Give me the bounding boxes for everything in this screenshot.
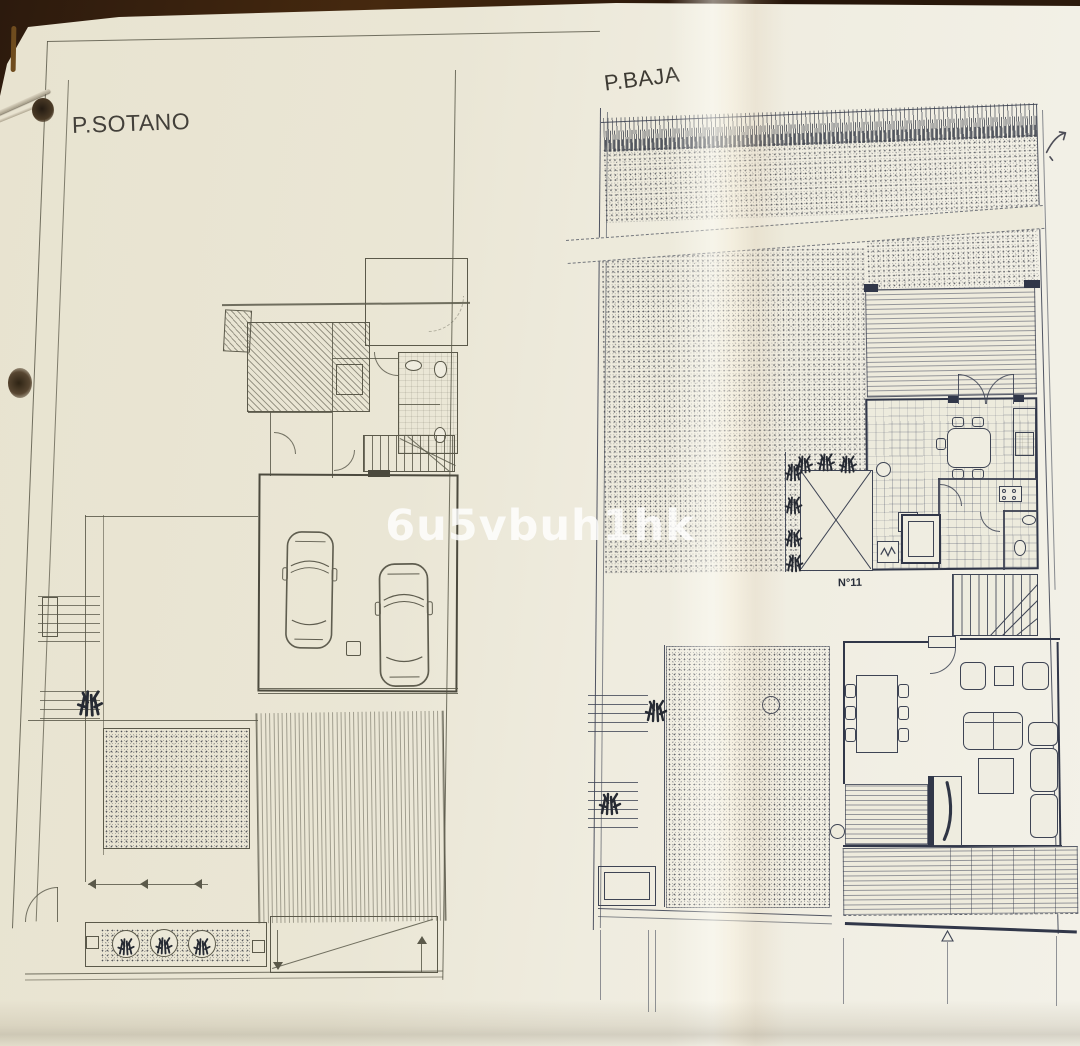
entry-steps: [604, 872, 650, 900]
terrace-line: [85, 516, 258, 517]
arrow-icon: [421, 942, 422, 972]
column: [86, 936, 99, 949]
extension-line: [843, 938, 844, 1004]
door-leaf: [958, 374, 959, 404]
shrub-icon: [192, 933, 212, 956]
toilet-icon: [434, 361, 447, 378]
chaise-sofa-icon: [1030, 748, 1058, 792]
chaise-sofa-icon: [1030, 794, 1058, 838]
shrub-icon: [154, 932, 174, 955]
elevator-car: [908, 521, 934, 557]
extension-line: [648, 930, 649, 1012]
wall-line: [248, 412, 332, 413]
shrub-icon: [836, 450, 860, 474]
deck-plank-joints: [950, 848, 1076, 914]
shrub-icon: [785, 548, 804, 574]
sink-icon: [1022, 515, 1036, 525]
stairs-icon: [363, 435, 455, 472]
staple-shadow: [32, 98, 54, 122]
shrub-icon: [784, 521, 803, 551]
floor-plan-photo: P.SOTANO: [0, 0, 1080, 1046]
extension-line: [655, 930, 656, 1012]
arrow-icon: [277, 930, 278, 964]
hole-punch-icon: [8, 368, 32, 398]
wall-line: [1003, 510, 1005, 570]
bottom-fold-crease: [0, 1006, 1080, 1046]
chair: [898, 728, 909, 742]
burner: [1002, 489, 1006, 493]
shrub-icon: [598, 776, 622, 826]
terrace-line: [28, 720, 258, 721]
shrub-icon: [792, 450, 816, 474]
shrub-icon: [76, 678, 104, 722]
sink-icon: [1015, 432, 1034, 456]
dining-table-icon: [856, 675, 898, 753]
extension-line: [600, 930, 601, 1000]
pen-mark-icon: [11, 26, 17, 72]
fireplace-wall: [928, 776, 934, 846]
courtyard: [800, 470, 873, 571]
wall-line: [398, 404, 440, 405]
drive-centerline: [88, 884, 208, 885]
armchair-icon: [1022, 662, 1049, 690]
entry-door: [928, 636, 956, 648]
house-number: N°11: [838, 577, 862, 589]
dining-table-icon: [947, 428, 991, 468]
toilet-icon: [1014, 540, 1026, 556]
sofa-split-line: [993, 713, 994, 749]
extension-line: [947, 942, 948, 1004]
burner: [1002, 496, 1006, 500]
chair: [845, 684, 856, 698]
garden-square: [666, 646, 830, 908]
wall-stub: [864, 284, 878, 292]
round-sink-icon: [876, 462, 891, 477]
planter: [42, 597, 58, 637]
wall-line: [938, 478, 1038, 480]
wall-line: [843, 641, 931, 643]
door-leaf: [57, 887, 58, 922]
wall-line: [270, 412, 271, 476]
wall-line: [1003, 510, 1038, 512]
sink-icon: [405, 360, 422, 371]
car-icon: [280, 525, 339, 656]
burner: [1012, 489, 1016, 493]
extension-line: [1056, 936, 1057, 1006]
wall-line: [960, 638, 1060, 640]
wall-stub: [1014, 395, 1024, 402]
triangle-marker: [941, 930, 954, 942]
chair: [972, 417, 984, 427]
watermark: 6u5vbuh1hk: [385, 501, 695, 551]
coffee-table: [978, 758, 1014, 794]
plan-sotano-title: P.SOTANO: [72, 108, 191, 139]
car-icon: [373, 560, 434, 691]
exterior-steps: [588, 688, 648, 732]
armchair-icon: [960, 662, 986, 690]
shrub-icon: [784, 488, 803, 518]
shrub-icon: [814, 448, 838, 472]
garden-tree: [762, 696, 780, 714]
shrub-icon: [116, 933, 136, 956]
garage-door-line: [258, 688, 458, 689]
chair: [936, 438, 946, 450]
hatched-porch: [223, 309, 252, 352]
side-table: [994, 666, 1014, 686]
wall-stub: [368, 470, 390, 477]
chair: [845, 728, 856, 742]
driveway-ramp: [256, 711, 447, 924]
round-table: [830, 824, 845, 839]
flame-icon: [938, 779, 958, 843]
chair: [952, 417, 964, 427]
stair-winders: [990, 574, 1038, 636]
chaise-sofa-icon: [1028, 722, 1058, 746]
burner: [1012, 496, 1016, 500]
column: [346, 641, 361, 656]
closet: [336, 364, 363, 395]
wood-deck-side: [845, 784, 928, 845]
wall-stub: [948, 396, 958, 403]
shrub-icon: [644, 684, 668, 732]
column: [252, 940, 265, 953]
pool: [103, 728, 250, 849]
chair: [898, 684, 909, 698]
chair: [898, 706, 909, 720]
wall-stub: [1024, 280, 1040, 288]
zigzag-icon: [879, 543, 897, 561]
scribble-icon: [1042, 122, 1077, 164]
garage-door-line: [258, 693, 458, 694]
chair: [845, 706, 856, 720]
